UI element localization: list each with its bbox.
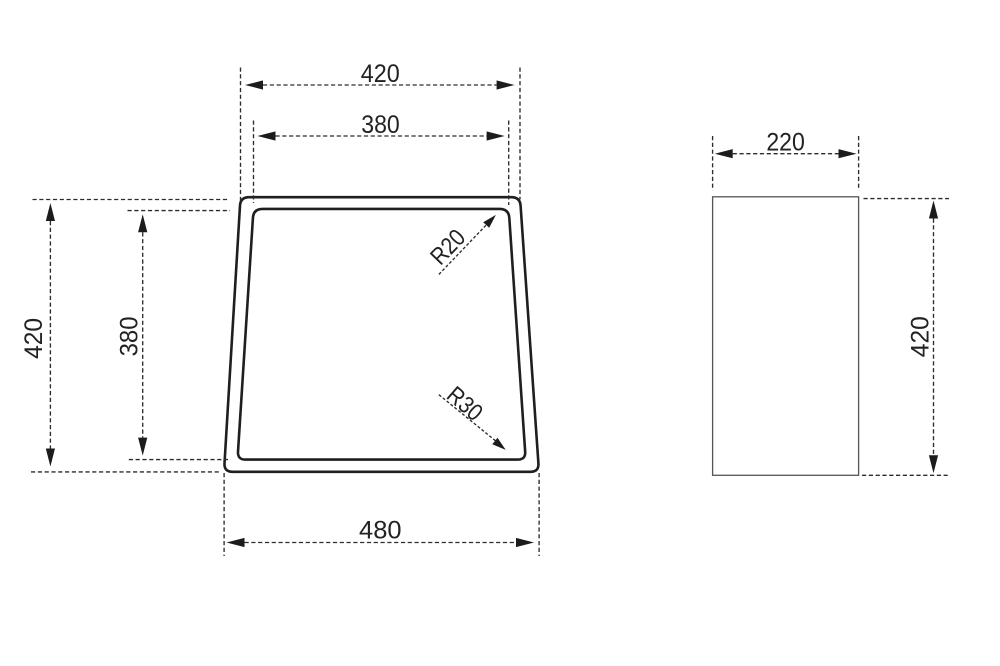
svg-text:480: 480 — [359, 517, 402, 545]
svg-text:420: 420 — [20, 318, 48, 359]
svg-text:420: 420 — [361, 60, 400, 88]
svg-text:380: 380 — [116, 316, 144, 356]
svg-text:420: 420 — [907, 316, 935, 357]
svg-text:220: 220 — [766, 128, 805, 156]
svg-text:380: 380 — [361, 111, 400, 139]
